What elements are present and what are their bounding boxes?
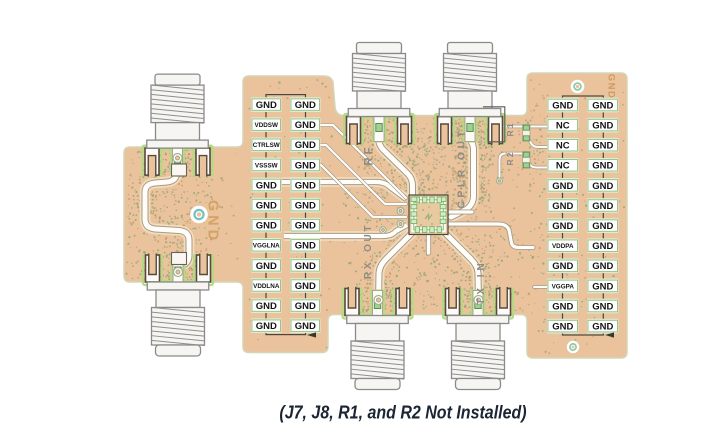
svg-text:GND: GND (552, 181, 573, 192)
svg-text:R2: R2 (505, 151, 515, 166)
svg-text:GND: GND (552, 100, 573, 111)
svg-text:GND: GND (552, 201, 573, 212)
svg-text:GND: GND (256, 301, 277, 312)
svg-text:GND: GND (592, 100, 613, 111)
svg-text:GND: GND (295, 301, 316, 312)
svg-text:GND: GND (592, 241, 613, 252)
svg-text:R1: R1 (505, 122, 515, 137)
svg-text:GND: GND (592, 121, 613, 132)
svg-text:GND: GND (256, 201, 277, 212)
svg-text:GND: GND (256, 321, 277, 332)
svg-text:GND: GND (295, 100, 316, 111)
svg-text:VSSSW: VSSSW (255, 162, 278, 169)
svg-text:GND: GND (552, 322, 573, 333)
svg-text:GND: GND (295, 180, 316, 191)
svg-text:GND: GND (295, 241, 316, 252)
svg-text:VDDPA: VDDPA (552, 243, 574, 250)
svg-text:GND: GND (256, 180, 277, 191)
svg-text:GND: GND (592, 301, 613, 312)
svg-text:GND: GND (256, 261, 277, 272)
svg-text:GND: GND (256, 221, 277, 232)
svg-text:GND: GND (295, 201, 316, 212)
svg-text:GND: GND (592, 281, 613, 292)
svg-text:NC: NC (556, 141, 570, 152)
svg-text:VGGLNA: VGGLNA (253, 243, 280, 250)
svg-text:CPLR OUT: CPLR OUT (457, 128, 468, 209)
svg-text:GND: GND (205, 200, 221, 244)
svg-text:VDDSW: VDDSW (255, 122, 278, 129)
svg-text:GND: GND (592, 201, 613, 212)
svg-text:GND: GND (295, 120, 316, 131)
svg-text:GND: GND (592, 322, 613, 333)
svg-text:GND: GND (552, 261, 573, 272)
svg-text:GND: GND (592, 161, 613, 172)
svg-text:GND: GND (552, 301, 573, 312)
svg-text:GND: GND (295, 221, 316, 232)
svg-text:CTRLSW: CTRLSW (253, 142, 280, 149)
svg-text:GND: GND (592, 221, 613, 232)
svg-text:NC: NC (556, 121, 570, 132)
svg-text:GND: GND (592, 261, 613, 272)
svg-text:GND: GND (592, 181, 613, 192)
svg-text:GND: GND (295, 321, 316, 332)
svg-text:GND: GND (606, 74, 617, 100)
svg-text:VDDLNA: VDDLNA (253, 283, 280, 290)
svg-text:GND: GND (295, 261, 316, 272)
svg-text:GND: GND (295, 140, 316, 151)
svg-text:TX IN: TX IN (476, 259, 487, 305)
svg-text:RX_OUT: RX_OUT (363, 223, 374, 279)
svg-text:GND: GND (552, 221, 573, 232)
svg-text:GND: GND (592, 141, 613, 152)
svg-text:GND: GND (295, 281, 316, 292)
svg-text:RF: RF (364, 144, 376, 165)
svg-text:GND: GND (295, 160, 316, 171)
svg-text:NC: NC (556, 161, 570, 172)
svg-text:GND: GND (256, 100, 277, 111)
svg-text:VGGPA: VGGPA (552, 283, 575, 290)
